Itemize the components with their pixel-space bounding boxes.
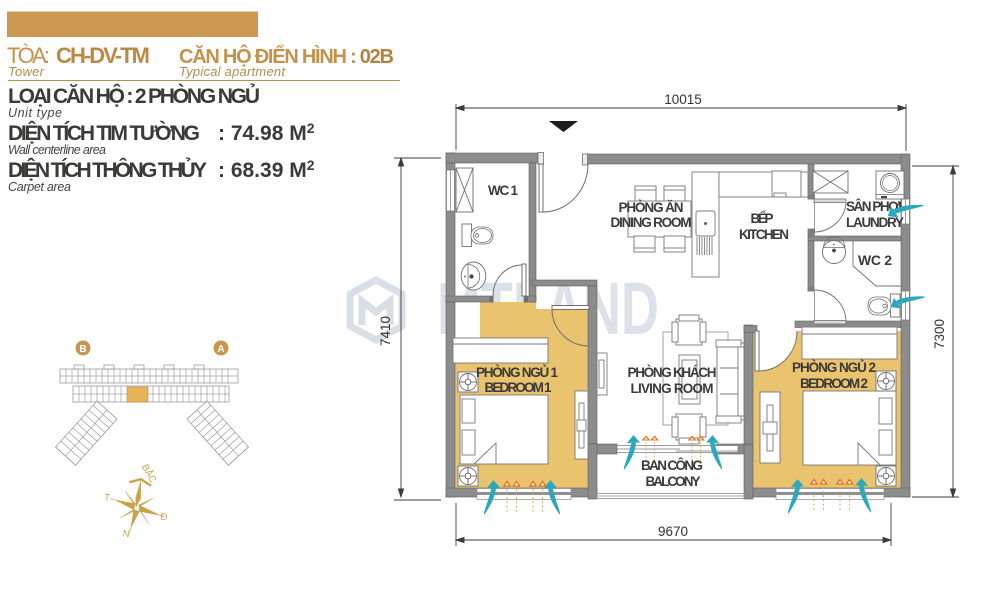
svg-text:PHÒNG ĂN: PHÒNG ĂN — [619, 200, 684, 215]
svg-text:Carpet area: Carpet area — [8, 180, 71, 194]
svg-text:Wall centerline area: Wall centerline area — [8, 143, 106, 157]
svg-text:Unit type: Unit type — [8, 106, 62, 120]
svg-text:: 68.39 M2: : 68.39 M2 — [218, 157, 315, 182]
svg-text:BAN CÔNG: BAN CÔNG — [641, 458, 703, 473]
svg-text:WC 1: WC 1 — [488, 183, 518, 198]
svg-text:PHÒNG NGỦ 1: PHÒNG NGỦ 1 — [476, 365, 558, 380]
svg-text:DIỆN TÍCH TIM TƯỜNG: DIỆN TÍCH TIM TƯỜNG — [8, 121, 200, 145]
svg-text:DINING ROOM: DINING ROOM — [611, 215, 692, 230]
svg-text:BẾP: BẾP — [751, 211, 774, 226]
svg-text:CH-DV-TM: CH-DV-TM — [56, 43, 150, 68]
svg-text:N: N — [122, 528, 130, 540]
svg-text:BEDROOM 1: BEDROOM 1 — [485, 380, 552, 395]
svg-text:LIVING ROOM: LIVING ROOM — [631, 381, 714, 396]
svg-text:10015: 10015 — [664, 92, 702, 107]
svg-text:PHÒNG NGỦ 2: PHÒNG NGỦ 2 — [792, 360, 876, 375]
svg-text:Đ: Đ — [160, 511, 168, 523]
svg-text:A: A — [217, 344, 224, 355]
svg-text:WC 2: WC 2 — [858, 252, 892, 268]
svg-text:BALCONY: BALCONY — [646, 474, 701, 489]
svg-text:PHÒNG KHÁCH: PHÒNG KHÁCH — [628, 365, 717, 380]
svg-text:LOẠI CĂN HỘ : 2 PHÒNG NGỦ: LOẠI CĂN HỘ : 2 PHÒNG NGỦ — [8, 84, 260, 108]
svg-text:KITCHEN: KITCHEN — [739, 227, 789, 242]
svg-text:LAUNDRY: LAUNDRY — [846, 215, 904, 230]
svg-text:BEDROOM 2: BEDROOM 2 — [800, 376, 868, 391]
svg-text:BẮC: BẮC — [139, 463, 158, 486]
svg-text:7410: 7410 — [378, 316, 393, 346]
svg-text:7300: 7300 — [932, 319, 947, 349]
svg-text:T: T — [103, 492, 110, 504]
svg-text:Tower: Tower — [8, 64, 45, 79]
svg-text:Typical apartment: Typical apartment — [179, 64, 286, 79]
svg-text:DIỆN TÍCH THÔNG THỦY: DIỆN TÍCH THÔNG THỦY — [8, 158, 207, 182]
svg-text:9670: 9670 — [658, 524, 688, 539]
svg-text:: 74.98 M2: : 74.98 M2 — [218, 120, 315, 145]
svg-text:B: B — [79, 344, 86, 355]
